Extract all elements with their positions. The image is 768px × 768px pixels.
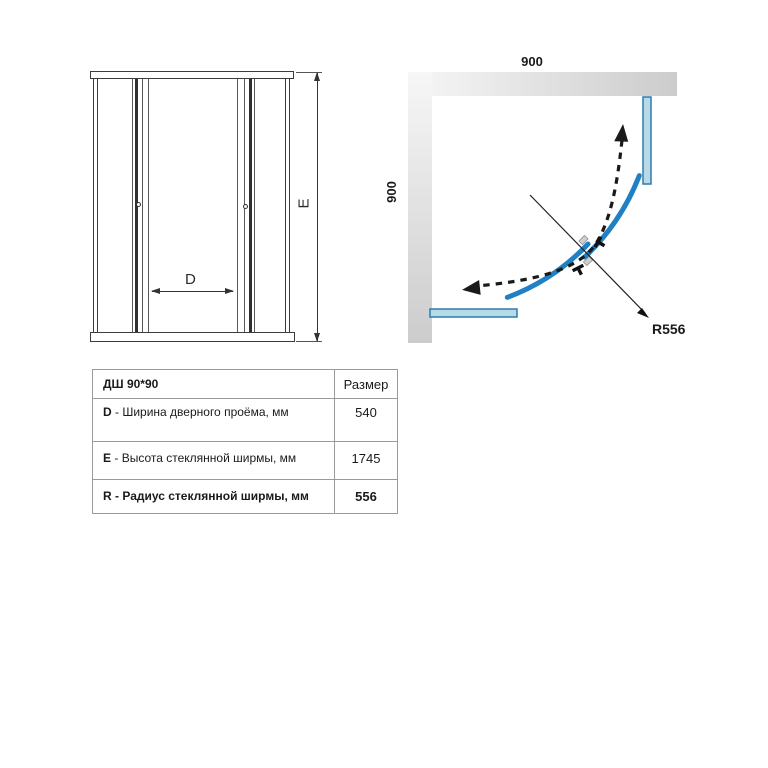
plan-dim-left: 900 (384, 181, 399, 203)
row-desc: Радиус стеклянной ширмы, мм (122, 489, 309, 503)
dim-arrow-right-icon (225, 288, 234, 294)
table-header-row: ДШ 90*90 Размер (93, 370, 398, 399)
dim-label-e: E (296, 198, 313, 208)
left-wall (408, 72, 432, 343)
plan-view: 900 900 R556 (380, 48, 700, 360)
fixed-glass-panel-bottom (430, 309, 517, 317)
radius-label: R556 (652, 321, 686, 337)
elevation-view: D E (88, 58, 338, 358)
right-door-handle-icon (243, 204, 248, 209)
table-row: D - Ширина дверного проёма, мм 540 (93, 399, 398, 442)
row-sep: - (111, 451, 122, 465)
dim-label-d: D (185, 271, 196, 288)
left-stile (93, 79, 98, 332)
plan-dim-top: 900 (521, 54, 543, 69)
glass-line (254, 79, 255, 332)
row-value: 540 (335, 399, 398, 442)
dim-line-e (317, 73, 318, 341)
size-column-header: Размер (335, 370, 398, 399)
open-direction-arrow-left-icon (461, 280, 480, 297)
table-row: E - Высота стеклянной ширмы, мм 1745 (93, 442, 398, 480)
fixed-glass-panel-right (643, 97, 651, 184)
dim-arrow-up-icon (314, 72, 320, 81)
right-door-track (249, 79, 252, 332)
glass-line (142, 79, 143, 332)
row-label: R - Радиус стеклянной ширмы, мм (93, 480, 335, 514)
dim-arrow-down-icon (314, 333, 320, 342)
row-letter: R (103, 489, 112, 503)
dim-line-d (152, 291, 233, 292)
row-value: 1745 (335, 442, 398, 480)
glass-line (148, 79, 149, 332)
row-label: E - Высота стеклянной ширмы, мм (93, 442, 335, 480)
radius-line (530, 195, 645, 313)
row-value: 556 (335, 480, 398, 514)
path-handle-mark-icon (572, 264, 587, 278)
row-desc: Ширина дверного проёма, мм (122, 405, 288, 419)
right-stile (285, 79, 290, 332)
glass-line (132, 79, 133, 332)
glass-line (237, 79, 238, 332)
bottom-rail (90, 332, 295, 342)
row-desc: Высота стеклянной ширмы, мм (122, 451, 296, 465)
row-label: D - Ширина дверного проёма, мм (93, 399, 335, 442)
row-letter: D (103, 405, 112, 419)
door-opening-path (476, 140, 622, 286)
row-sep: - (112, 489, 123, 503)
radius-arrow-icon (637, 308, 649, 318)
spec-table: ДШ 90*90 Размер D - Ширина дверного проё… (92, 369, 398, 514)
top-rail (90, 71, 294, 79)
table-row: R - Радиус стеклянной ширмы, мм 556 (93, 480, 398, 514)
curved-door-upper (585, 176, 640, 257)
dim-arrow-left-icon (151, 288, 160, 294)
top-wall (408, 72, 677, 96)
left-door-handle-icon (136, 202, 141, 207)
model-name: ДШ 90*90 (93, 370, 335, 399)
row-letter: E (103, 451, 111, 465)
open-direction-arrow-up-icon (614, 123, 630, 142)
row-sep: - (112, 405, 123, 419)
